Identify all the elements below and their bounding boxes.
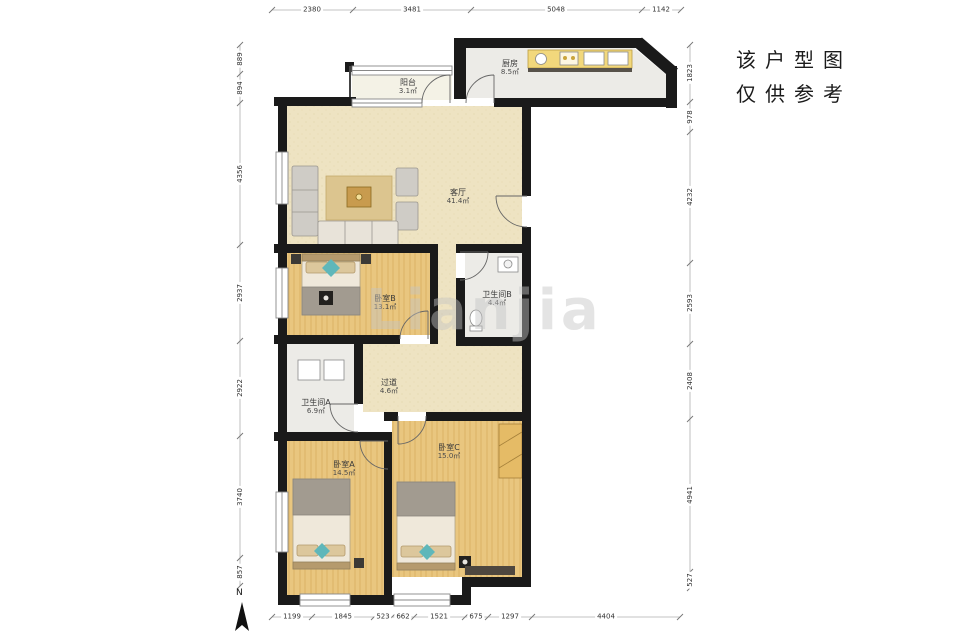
dim-left-3: 4356 xyxy=(236,163,244,185)
dim-right-4: 2593 xyxy=(686,292,694,314)
room-label-balcony: 阳台3.1㎡ xyxy=(399,78,417,96)
dim-bottom-2: 1845 xyxy=(332,613,354,621)
room-label-kitchen: 厨房8.5㎡ xyxy=(501,59,519,77)
disclaimer-line2: 仅供参考 xyxy=(736,78,886,112)
dim-right-6: 4941 xyxy=(686,484,694,506)
dim-top-2: 3481 xyxy=(401,6,423,14)
disclaimer-line1: 该户型图 xyxy=(736,44,886,78)
dim-bottom-7: 1297 xyxy=(499,613,521,621)
dim-left-1: 889 xyxy=(236,50,244,67)
dim-bottom-6: 675 xyxy=(467,613,484,621)
dim-bottom-1: 1199 xyxy=(281,613,303,621)
dim-bottom-4: 662 xyxy=(394,613,411,621)
dim-top-3: 5048 xyxy=(545,6,567,14)
dim-left-7: 857 xyxy=(236,563,244,580)
dim-right-1: 1823 xyxy=(686,62,694,84)
disclaimer-note: 该户型图 仅供参考 xyxy=(736,44,886,112)
dim-bottom-8: 4404 xyxy=(595,613,617,621)
room-label-bathroom-b: 卫生间B4.4㎡ xyxy=(482,290,512,308)
dim-left-4: 2937 xyxy=(236,282,244,304)
floorplan-page: 阳台3.1㎡ 厨房8.5㎡ 客厅41.4㎡ 卧室B13.1㎡ 卫生间B4.4㎡ … xyxy=(0,0,976,634)
room-label-bathroom-a: 卫生间A6.9㎡ xyxy=(301,398,330,416)
dim-left-2: 894 xyxy=(236,79,244,96)
dim-right-5: 2408 xyxy=(686,370,694,392)
dim-top-4: 1142 xyxy=(650,6,672,14)
room-label-bedroom-b: 卧室B13.1㎡ xyxy=(374,294,397,312)
dim-right-7: 527 xyxy=(686,571,694,588)
compass-icon xyxy=(235,602,249,631)
room-label-bedroom-c: 卧室C15.0㎡ xyxy=(438,443,461,461)
dim-top-1: 2380 xyxy=(301,6,323,14)
dim-right-3: 4232 xyxy=(686,186,694,208)
dim-bottom-3: 523 xyxy=(374,613,391,621)
compass-north-label: N xyxy=(236,588,243,598)
room-label-living: 客厅41.4㎡ xyxy=(447,188,470,206)
dim-left-6: 3740 xyxy=(236,486,244,508)
room-label-bedroom-a: 卧室A14.5㎡ xyxy=(333,460,356,478)
dim-left-5: 2922 xyxy=(236,377,244,399)
room-label-hallway: 过道4.6㎡ xyxy=(380,378,398,396)
dim-right-2: 978 xyxy=(686,108,694,125)
dim-bottom-5: 1521 xyxy=(428,613,450,621)
